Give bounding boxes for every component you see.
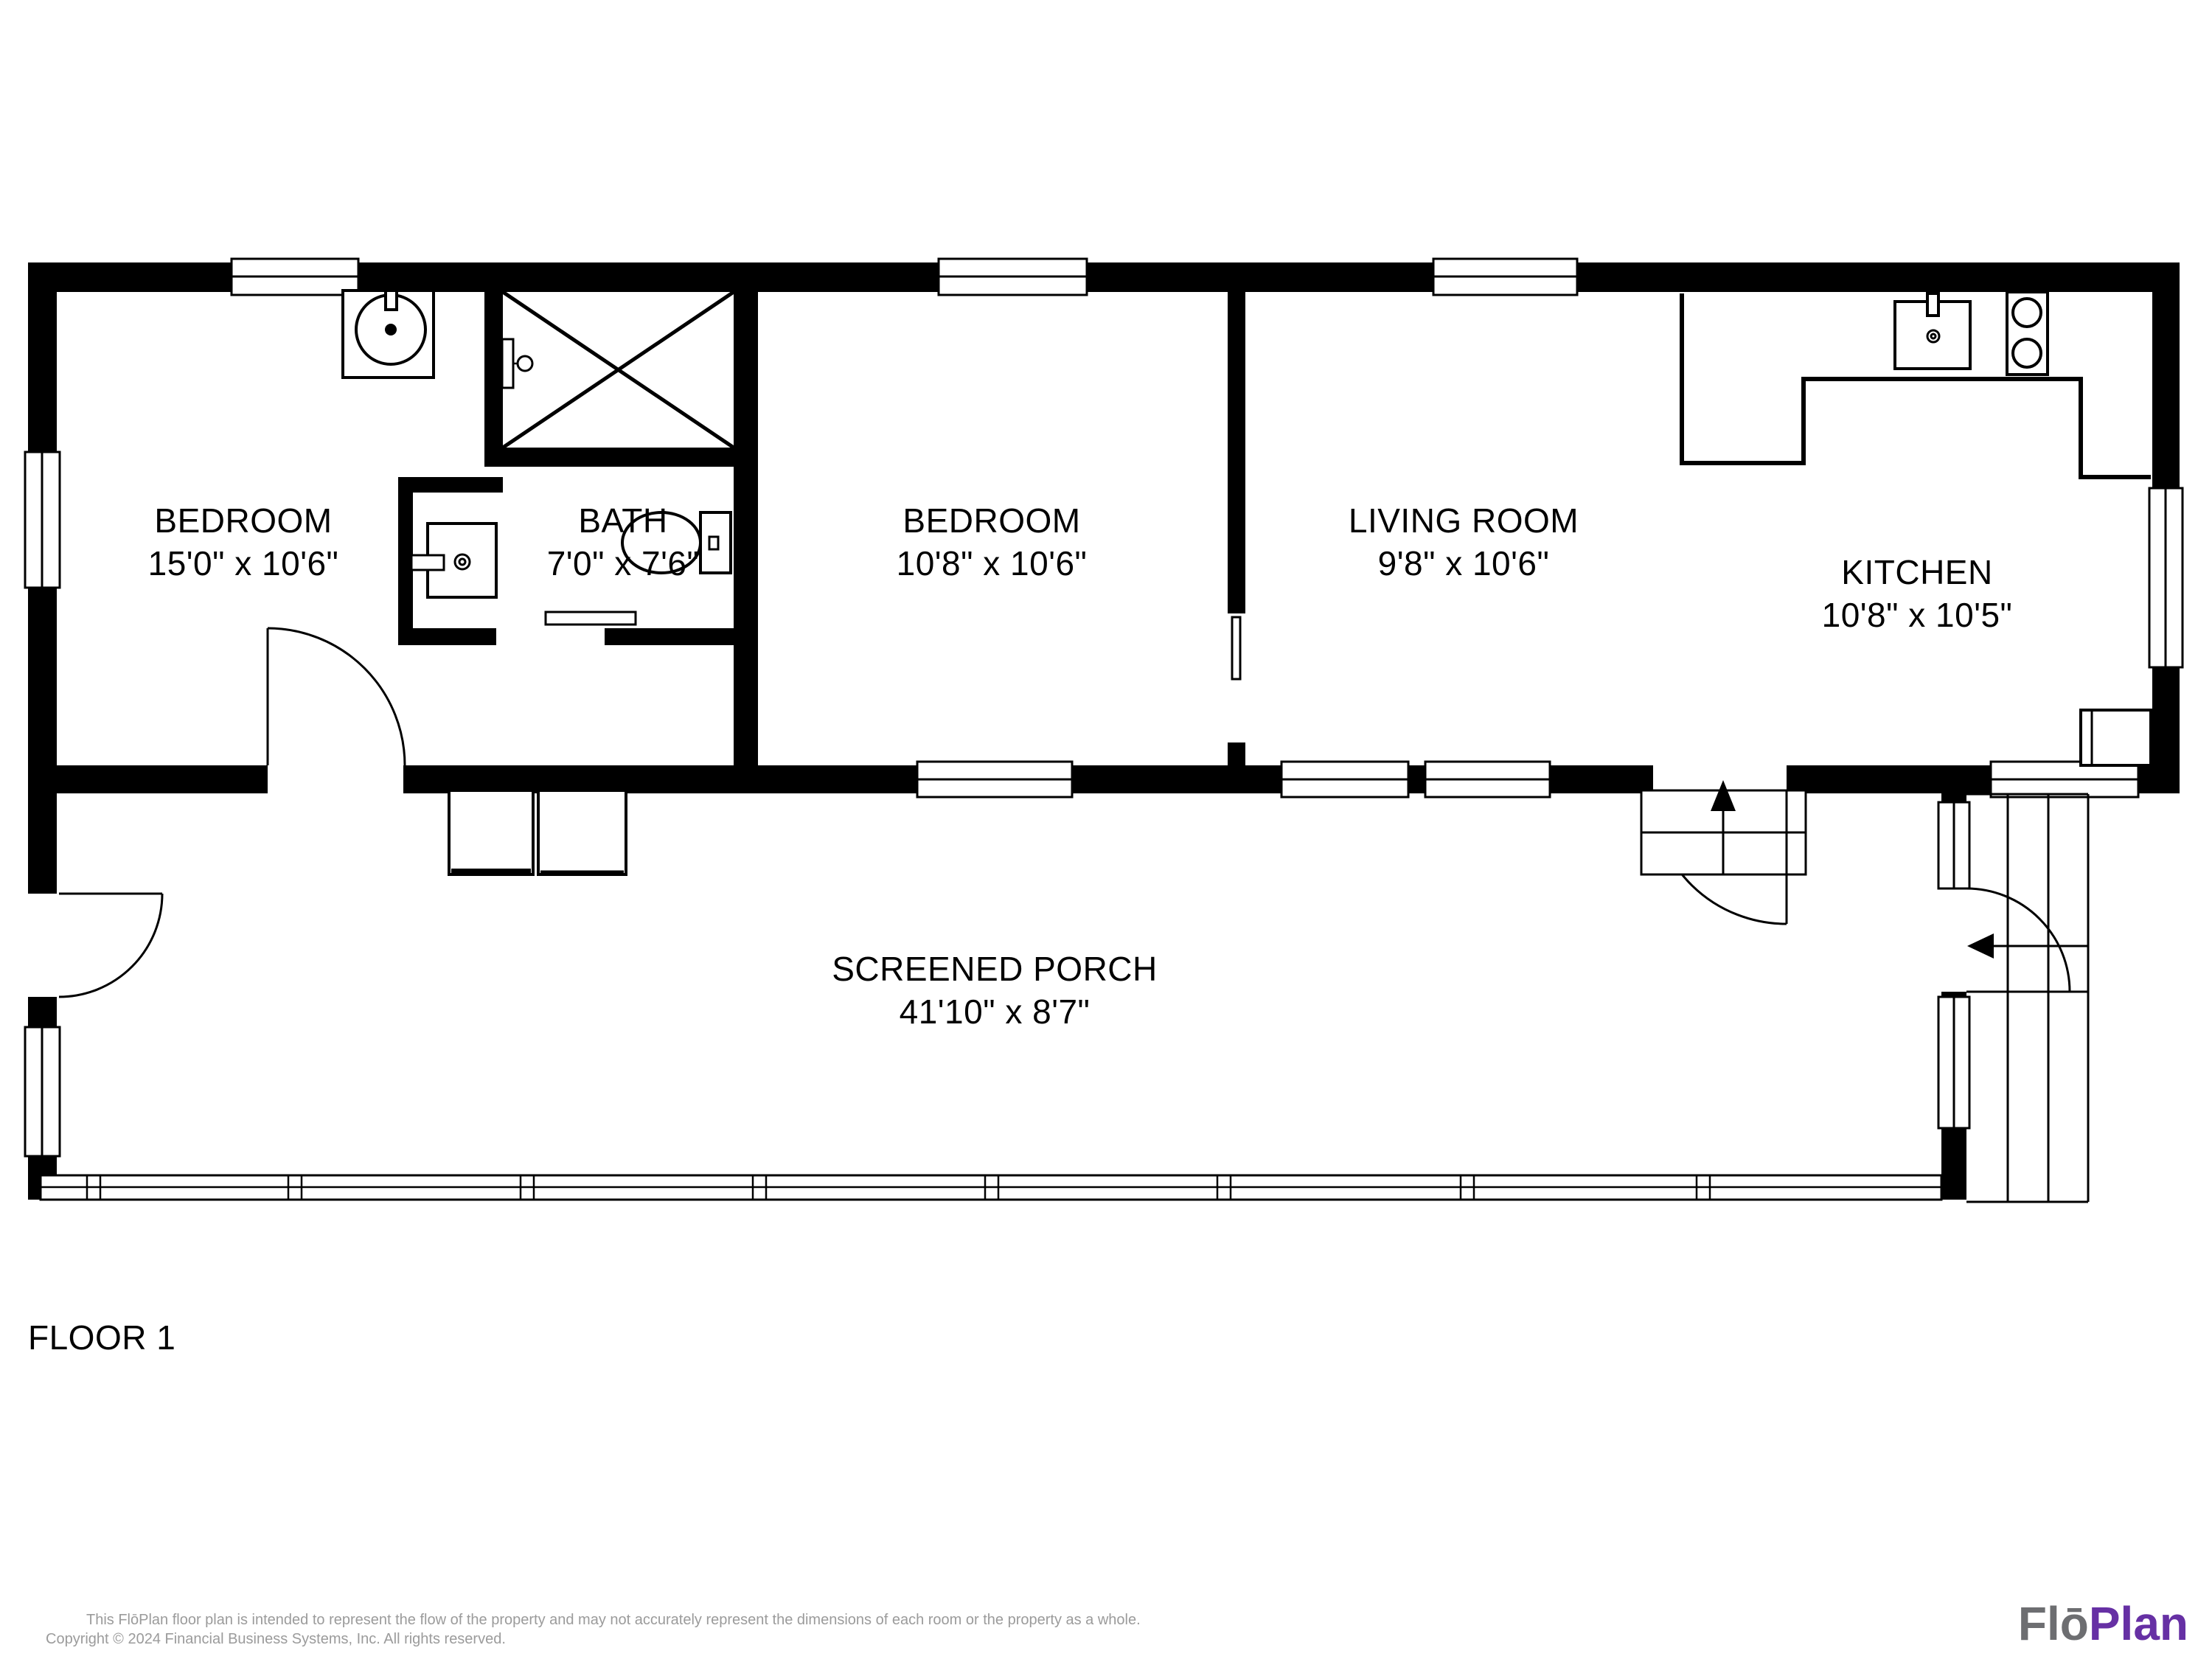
window-porch-right-2 xyxy=(1938,997,1969,1128)
room-dims-livingroom: 9'8" x 10'6" xyxy=(1378,544,1550,582)
room-dims-bedroom2: 10'8" x 10'6" xyxy=(897,544,1088,582)
room-dims-bath: 7'0" x 7'6" xyxy=(547,544,700,582)
bath-pocket-door-opening xyxy=(496,627,605,647)
sink-drain xyxy=(385,324,397,335)
logo-text-flo: Flō xyxy=(2018,1597,2089,1650)
window-bedroom1-left xyxy=(25,452,60,588)
left-arrow-icon xyxy=(1967,933,1994,959)
porch-right-door-opening xyxy=(1941,888,1966,992)
window-kitchen-bottom xyxy=(1991,762,2138,797)
window-bedroom2-top xyxy=(939,259,1087,295)
washing-machine-icon xyxy=(411,524,496,597)
window-livingroom-top xyxy=(1433,259,1577,295)
floplan-logo: FlōPlan xyxy=(2018,1597,2188,1650)
window-bedroom1-top xyxy=(232,259,358,295)
wall-alcove-top xyxy=(398,477,503,493)
room-dims-bedroom1: 15'0" x 10'6" xyxy=(148,544,339,582)
bedroom-door xyxy=(268,628,405,765)
exterior-stairs xyxy=(1966,794,2088,1202)
livingroom-pocket-door xyxy=(1232,617,1240,679)
room-label-screened-porch: SCREENED PORCH xyxy=(832,950,1158,988)
floor-title: FLOOR 1 xyxy=(28,1318,175,1357)
floor-plan-canvas: BEDROOM 15'0" x 10'6" BATH 7'0" x 7'6" B… xyxy=(0,0,2212,1659)
disclaimer-line-1: This FlōPlan floor plan is intended to r… xyxy=(86,1612,1141,1628)
wall-bath-left xyxy=(484,292,503,467)
logo-text-plan: Plan xyxy=(2089,1597,2188,1650)
stove-icon xyxy=(2007,292,2048,375)
room-label-bedroom1: BEDROOM xyxy=(154,501,332,540)
footer: This FlōPlan floor plan is intended to r… xyxy=(46,1597,2188,1650)
wall-shower-bottom xyxy=(484,448,758,467)
room-dims-kitchen: 10'8" x 10'5" xyxy=(1822,596,2013,634)
window-kitchen-right xyxy=(2149,488,2183,667)
bath-pocket-door xyxy=(546,612,636,625)
room-label-bath: BATH xyxy=(578,501,667,540)
window-porch-right-1 xyxy=(1938,802,1969,888)
window-livingroom-bottom-1 xyxy=(1281,762,1408,797)
porch-appliance-1 xyxy=(449,790,533,874)
bedroom-door-opening xyxy=(268,764,403,795)
wall-bath-right xyxy=(734,292,758,793)
bedroom-sink-icon xyxy=(343,291,434,378)
room-label-bedroom2: BEDROOM xyxy=(902,501,1080,540)
room-label-kitchen: KITCHEN xyxy=(1841,553,1992,591)
kitchen-sink-icon xyxy=(1895,293,1970,369)
windows xyxy=(25,259,2183,1156)
window-porch-left xyxy=(25,1027,60,1156)
porch-left-door-opening xyxy=(28,894,57,997)
window-livingroom-bottom-2 xyxy=(1425,762,1550,797)
disclaimer-line-2: Copyright © 2024 Financial Business Syst… xyxy=(46,1631,506,1647)
room-label-livingroom: LIVING ROOM xyxy=(1349,501,1579,540)
window-bedroom2-bottom xyxy=(917,762,1072,797)
shower-icon xyxy=(502,292,734,448)
dishwasher-icon xyxy=(2081,710,2151,765)
porch-entry-steps xyxy=(1641,780,1806,874)
room-dims-screened-porch: 41'10" x 8'7" xyxy=(900,992,1091,1031)
porch-left-door xyxy=(59,894,162,997)
porch-appliance-2 xyxy=(538,790,626,874)
porch-screen-wall xyxy=(41,1175,1941,1200)
walls xyxy=(28,262,2180,1200)
